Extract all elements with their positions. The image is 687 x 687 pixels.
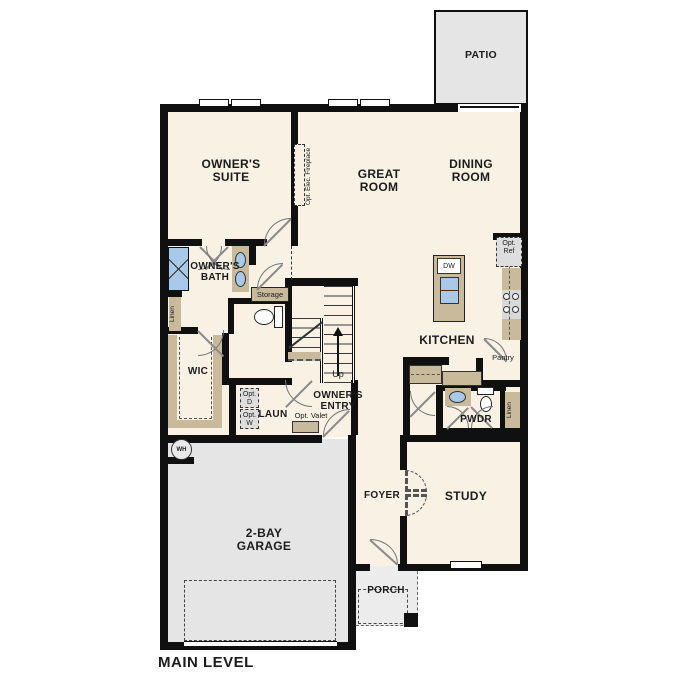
burner-icon <box>512 293 519 300</box>
opt-washer-label: Opt. W <box>243 412 256 427</box>
wall <box>400 435 407 470</box>
room-label-wic: WIC <box>183 367 213 378</box>
stair-halfwall <box>288 352 321 361</box>
window <box>328 99 358 107</box>
window <box>360 99 390 107</box>
room-label-great-room: GREAT ROOM <box>349 168 409 193</box>
wall <box>229 385 236 435</box>
porch-post <box>404 613 418 627</box>
toilet-icon <box>254 309 274 325</box>
room-label-study: STUDY <box>438 490 494 503</box>
wall <box>400 516 407 571</box>
wall <box>520 104 528 571</box>
label-opt-fireplace: Opt. Elec. Fireplace <box>305 142 315 210</box>
room-label-patio: PATIO <box>458 50 504 61</box>
window <box>231 99 261 107</box>
wall <box>348 564 370 571</box>
counter-dash-line <box>411 374 440 375</box>
room-label-owners-suite: OWNER'S SUITE <box>196 158 266 183</box>
label-linen-right: Linen <box>506 394 519 427</box>
opt-dryer-label: Opt. D <box>243 391 256 406</box>
label-pantry: Pantry <box>487 353 519 362</box>
room-label-owners-bath: OWNER'S BATH <box>190 262 240 283</box>
label-opt-valet: Opt. Valet <box>290 411 332 420</box>
stair-rail <box>320 318 323 383</box>
opt-dryer: Opt. D <box>240 388 259 408</box>
label-storage: Storage <box>253 290 287 299</box>
room-label-porch: PORCH <box>362 586 410 597</box>
room-label-dining-room: DINING ROOM <box>441 158 501 183</box>
up-arrow-head <box>333 327 343 336</box>
toilet-tank <box>274 306 283 328</box>
burner-icon <box>512 306 519 313</box>
window <box>199 99 229 107</box>
wall <box>285 278 358 286</box>
island-sink-divider <box>441 290 458 291</box>
wh-label: WH <box>177 447 187 453</box>
wall <box>436 385 443 430</box>
wall <box>249 239 256 265</box>
stairs <box>292 318 321 353</box>
wall <box>228 298 234 334</box>
room-label-garage: 2-BAY GARAGE <box>225 527 303 552</box>
sink-icon <box>449 391 466 403</box>
opt-ref-label: Opt. Ref <box>502 240 515 255</box>
floor-plan: Opt. D Opt. W DW Opt. Ref WH <box>0 0 687 687</box>
room-label-laundry: LAUN <box>256 410 290 421</box>
toilet-tank <box>477 387 494 395</box>
opt-refrigerator: Opt. Ref <box>496 237 522 267</box>
kitchen-counter-south <box>442 371 482 386</box>
wall <box>160 104 168 650</box>
room-label-owners-entry: OWNER'S ENTRY <box>306 391 370 412</box>
wall <box>225 239 267 246</box>
cased-opening-line <box>291 246 292 280</box>
plan-title: MAIN LEVEL <box>158 655 288 671</box>
window <box>450 561 482 569</box>
wall <box>222 378 292 385</box>
water-heater-icon: WH <box>171 439 192 460</box>
dishwasher: DW <box>437 258 461 274</box>
wall <box>476 380 522 387</box>
garage-door-clearance <box>184 580 336 641</box>
label-linen-left: Linen <box>169 299 181 330</box>
wall <box>348 435 356 650</box>
valet-bench <box>292 421 319 433</box>
patio-door-panel <box>460 106 519 108</box>
stair-rail <box>352 286 355 383</box>
wall <box>160 239 202 246</box>
room-label-foyer: FOYER <box>361 491 403 502</box>
dishwasher-label: DW <box>443 263 455 270</box>
wall <box>400 435 528 442</box>
opt-fireplace-box <box>294 144 305 206</box>
room-label-pwdr: PWDR <box>455 415 497 426</box>
wall <box>350 435 356 443</box>
wic-shelf <box>168 335 177 428</box>
wall <box>436 428 528 435</box>
shower-icon <box>168 247 189 291</box>
room-label-kitchen: KITCHEN <box>418 334 476 347</box>
garage-door <box>184 641 337 647</box>
label-up: Up <box>327 369 349 379</box>
